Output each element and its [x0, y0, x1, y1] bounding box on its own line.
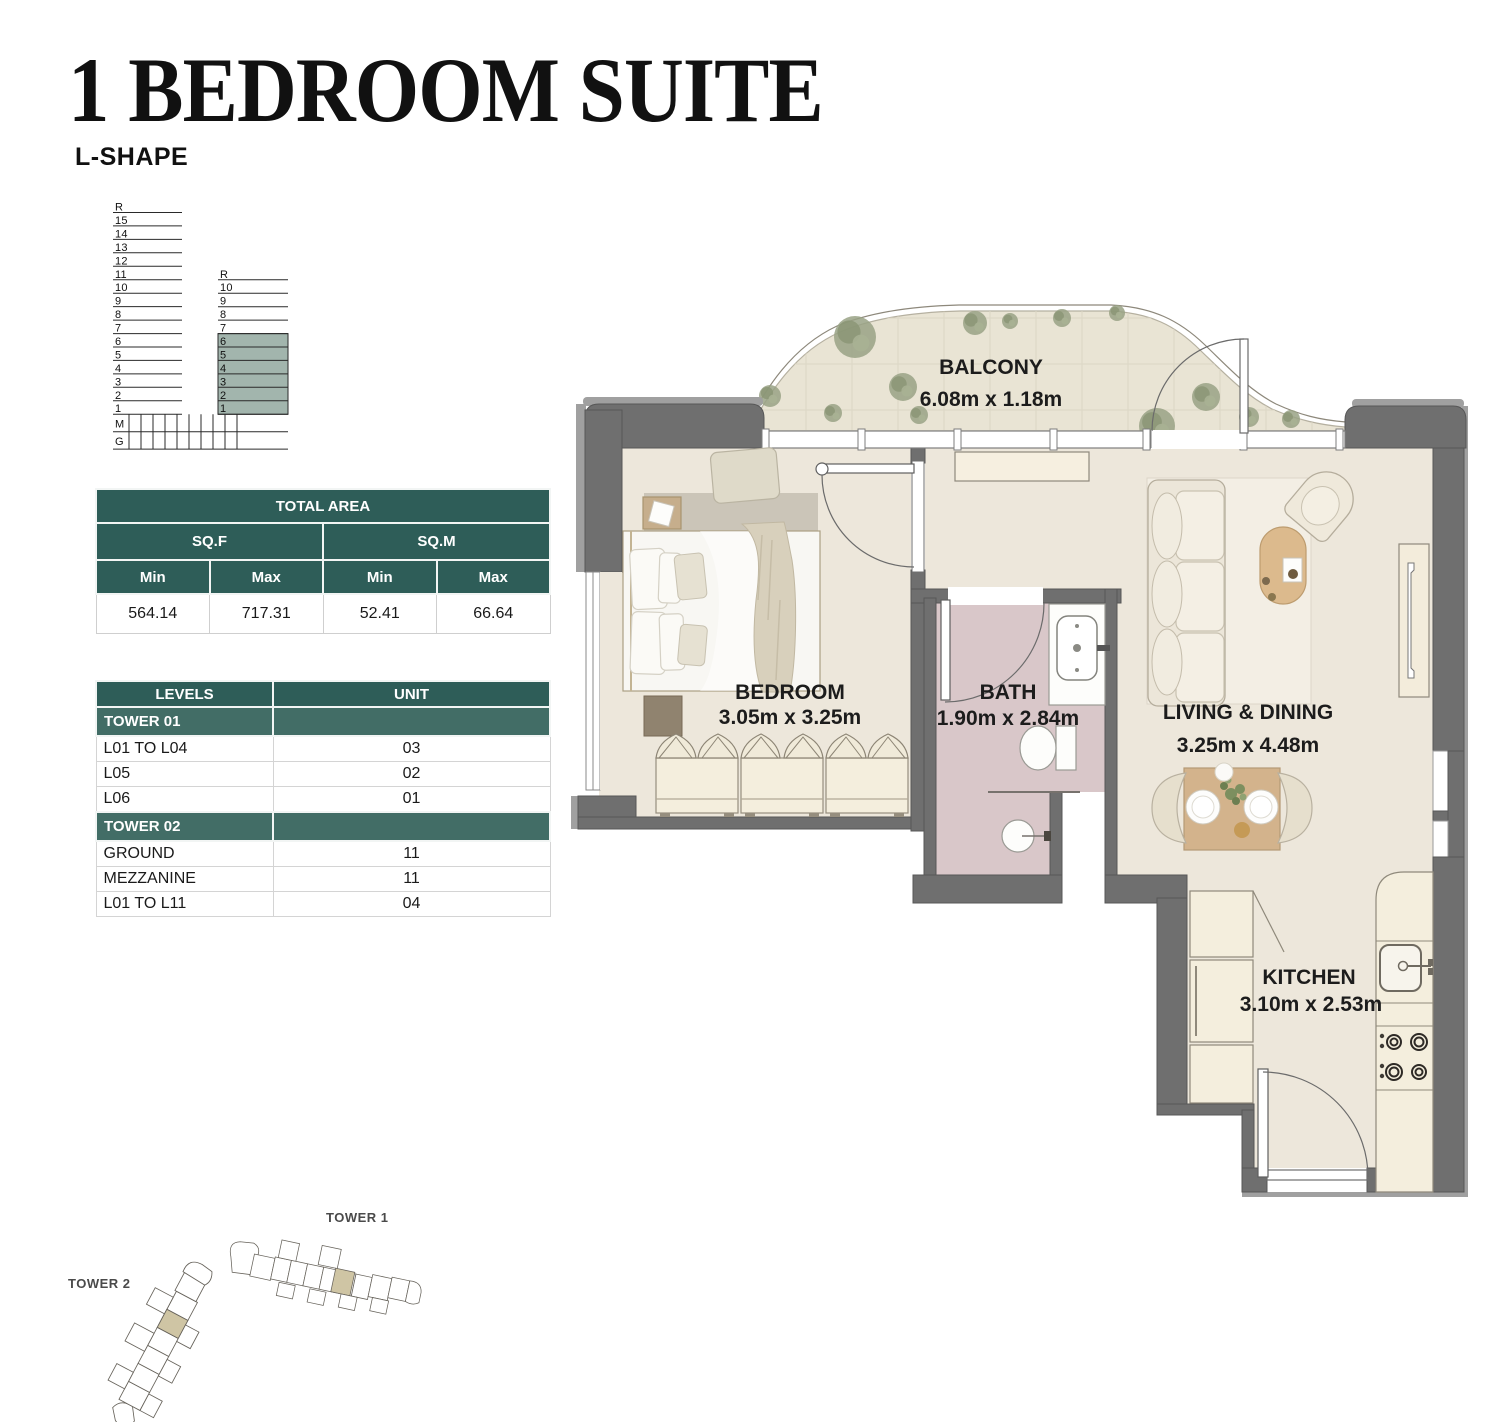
svg-text:TOWER 2: TOWER 2 — [68, 1276, 131, 1291]
svg-text:TOWER 1: TOWER 1 — [326, 1210, 389, 1225]
